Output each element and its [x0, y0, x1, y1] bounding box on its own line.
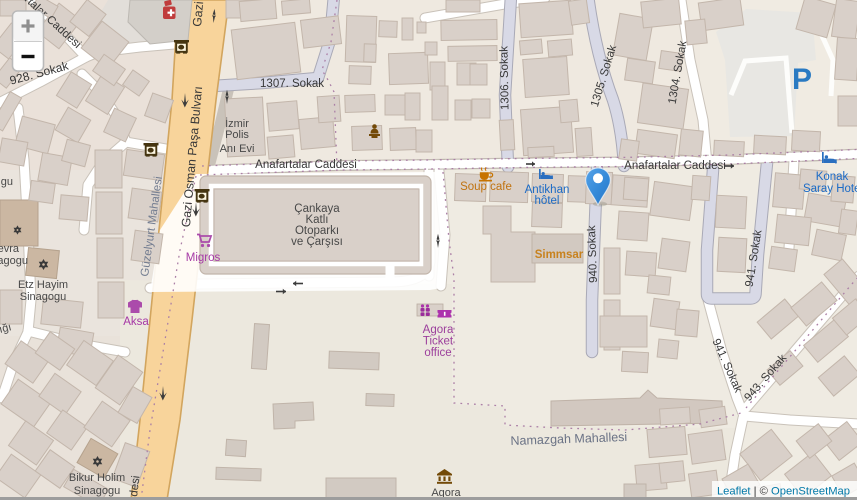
svg-text:Agora: Agora	[423, 324, 454, 336]
svg-text:Polis: Polis	[225, 129, 249, 141]
svg-text:Aksa: Aksa	[123, 316, 149, 328]
svg-text:Migros: Migros	[186, 252, 221, 264]
svg-text:office: office	[424, 347, 451, 359]
svg-text:evra: evra	[0, 243, 20, 255]
svg-text:gu: gu	[1, 176, 13, 188]
svg-text:Anı Evi: Anı Evi	[220, 143, 255, 155]
svg-text:Etz Hayim: Etz Hayim	[18, 279, 68, 291]
svg-text:ve Çarşısı: ve Çarşısı	[291, 236, 343, 248]
svg-text:hôtel: hôtel	[535, 195, 560, 207]
svg-text:Konak: Konak	[816, 171, 849, 183]
svg-text:Anafartalar Caddesi: Anafartalar Caddesi	[624, 160, 726, 172]
svg-text:Sinagogu: Sinagogu	[74, 485, 121, 497]
svg-text:Saray Hotel: Saray Hotel	[803, 183, 857, 195]
svg-text:Ticket: Ticket	[423, 336, 454, 348]
svg-text:Bikur Holim: Bikur Holim	[69, 472, 125, 484]
svg-text:Soup cafe: Soup cafe	[460, 181, 512, 193]
svg-text:Simmsar: Simmsar	[535, 249, 584, 261]
svg-text:Anafartalar Caddesi: Anafartalar Caddesi	[255, 159, 357, 171]
svg-text:agogu: agogu	[0, 255, 28, 267]
svg-text:desi: desi	[128, 475, 142, 497]
svg-text:1306. Sokak: 1306. Sokak	[498, 46, 511, 110]
svg-text:Sinagogu: Sinagogu	[20, 291, 67, 303]
svg-text:940. Sokak: 940. Sokak	[586, 225, 600, 283]
svg-text:P: P	[792, 63, 812, 96]
svg-text:1307. Sokak: 1307. Sokak	[260, 78, 324, 90]
svg-text:Leaflet | © OpenStreetMap: Leaflet | © OpenStreetMap	[717, 486, 850, 498]
